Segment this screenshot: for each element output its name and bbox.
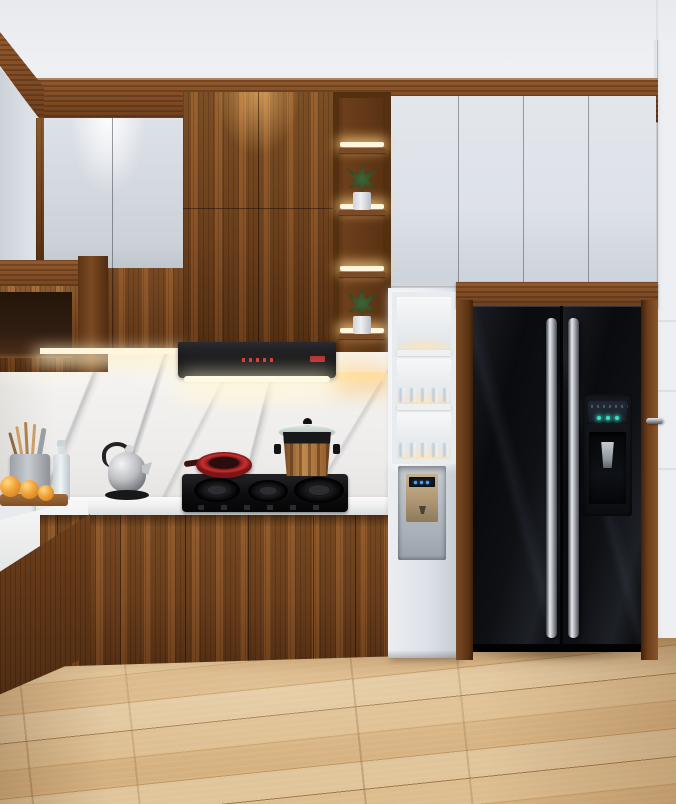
- door-groove: [658, 390, 676, 392]
- fridge-frame-left: [456, 300, 473, 660]
- plant-pot: [353, 316, 371, 334]
- teal-indicator: [615, 416, 619, 420]
- cooking-pot: [276, 418, 338, 484]
- orange-fruit: [38, 485, 54, 501]
- shelf-cell: [397, 356, 451, 404]
- teal-indicator: [597, 416, 601, 420]
- potted-plant: [347, 164, 377, 212]
- fridge-handle-left: [546, 318, 557, 638]
- fridge-frame-right: [641, 300, 658, 660]
- indicator-dot: [420, 481, 423, 484]
- shelf-board: [339, 148, 385, 153]
- refrigerator: [473, 306, 641, 652]
- fridge-frame-top: [456, 282, 658, 308]
- water-dispenser: [398, 466, 446, 560]
- shelf-cell: [397, 410, 451, 459]
- shelf-cell: [397, 297, 451, 350]
- water-spout: [419, 506, 426, 514]
- shelf-board: [339, 272, 385, 277]
- water-dispenser-display: [409, 477, 435, 487]
- fridge-handle-right: [568, 318, 579, 638]
- door-lever-handle: [646, 418, 663, 424]
- orange-fruit: [0, 476, 21, 497]
- white-upper-cabinets: [38, 118, 184, 270]
- shelf-bottom-glow: [336, 372, 388, 381]
- corner-stile: [36, 118, 44, 270]
- glassware-row: [399, 388, 449, 402]
- orange-fruit: [20, 480, 39, 499]
- teal-indicator: [606, 416, 610, 420]
- door-groove: [658, 468, 676, 470]
- dispenser-paddle: [600, 442, 615, 468]
- potted-plant: [347, 288, 377, 336]
- white-uppers-over-fridge: [378, 96, 656, 286]
- glass-bottle: [53, 440, 70, 500]
- corner-post: [78, 256, 108, 372]
- shelf-board: [397, 350, 451, 356]
- door-groove: [658, 320, 676, 322]
- indicator-dot: [426, 481, 429, 484]
- pot-handle: [274, 444, 281, 454]
- plant-leaves: [347, 164, 377, 194]
- kettle-body: [108, 452, 146, 492]
- hood-brand-badge: [310, 356, 325, 362]
- glassware-row: [399, 443, 449, 457]
- warm-glow: [397, 336, 451, 350]
- under-cabinet-light: [40, 348, 182, 354]
- led-strip: [340, 266, 384, 271]
- kettle-base: [105, 490, 149, 500]
- base-cabinets: [40, 515, 392, 667]
- pan-body: [196, 452, 252, 478]
- dispenser-display: [587, 400, 628, 424]
- dispenser-bay: [589, 432, 626, 504]
- kitchen-render: [0, 0, 676, 804]
- hood-control-buttons: [242, 358, 274, 362]
- indicator-dot: [414, 481, 417, 484]
- water-dispenser-unit: [406, 474, 438, 522]
- kettle: [100, 440, 152, 504]
- pot-body: [281, 432, 333, 476]
- wooden-utensil: [31, 424, 36, 458]
- shelf-board: [397, 404, 451, 410]
- plant-leaves: [347, 288, 377, 318]
- fridge-base-shadow: [473, 643, 641, 652]
- plant-pot: [353, 192, 371, 210]
- hood-light-strip: [184, 376, 330, 382]
- contact-shadow: [388, 650, 460, 658]
- pot-handle: [333, 444, 340, 454]
- pantry-column: [388, 288, 460, 658]
- hood-cabinet: [183, 92, 333, 346]
- display-shelf-column: [333, 92, 391, 382]
- led-strip: [340, 142, 384, 147]
- wooden-utensil: [24, 422, 29, 458]
- glass-shelves: [392, 292, 456, 464]
- range-hood: [178, 342, 336, 378]
- ice-water-dispenser: [583, 394, 632, 516]
- frying-pan: [186, 446, 252, 484]
